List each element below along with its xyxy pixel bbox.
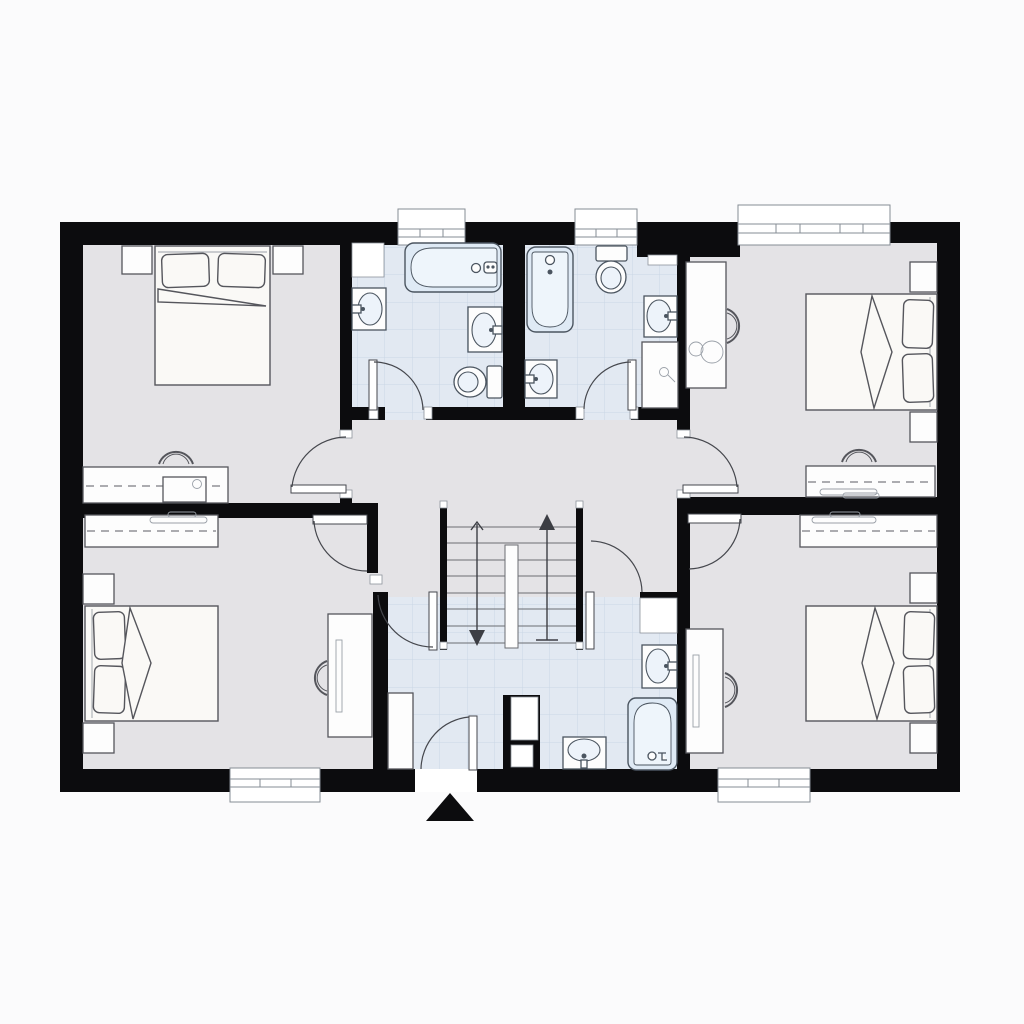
nightstand: [122, 246, 152, 274]
wall-bath-left: [373, 592, 388, 769]
bed: [155, 246, 270, 385]
opening-bedroom-top-left: [340, 437, 352, 492]
floor-plan-page: [0, 0, 1024, 1024]
bed: [806, 294, 937, 410]
cabinet: [388, 693, 413, 769]
nightstand: [83, 723, 114, 753]
wardrobe-counter: [806, 466, 935, 498]
desk: [686, 262, 726, 388]
opening-bathroom-top-left: [385, 407, 426, 420]
nightstand: [273, 246, 303, 274]
floor-hallway-right-branch: [583, 503, 677, 597]
nightstand: [83, 574, 114, 604]
wall-stair-right: [576, 503, 583, 650]
shaft-opening-top: [511, 697, 538, 740]
toilet: [454, 366, 502, 398]
wall-stair-left: [440, 503, 447, 650]
desk: [328, 614, 372, 737]
desk: [83, 467, 228, 503]
floor-plan-drawing: [0, 0, 1024, 1024]
sink: [642, 645, 677, 688]
jamb: [576, 642, 583, 649]
floor-hallway: [352, 415, 677, 503]
window-bedroom-bottom-right: [718, 768, 810, 802]
window-bedroom-bottom-left: [230, 768, 320, 802]
shaft-opening-bottom: [511, 745, 533, 767]
entry-arrow: [426, 793, 474, 821]
nightstand: [910, 412, 937, 442]
wall-bath2-bottom-a: [525, 407, 583, 420]
sink: [563, 737, 606, 769]
wall-bath1-bottom-b: [426, 407, 503, 420]
sink: [525, 360, 557, 398]
sink: [352, 288, 386, 330]
window-bathroom-top-center: [575, 209, 637, 245]
shelf: [352, 243, 384, 277]
nightstand: [910, 262, 937, 292]
wall-left-lower-stub: [367, 518, 378, 573]
desk: [686, 629, 723, 753]
cabinet: [642, 342, 678, 408]
jamb: [424, 407, 432, 419]
window-bathroom-top-left: [398, 209, 465, 245]
window-bedroom-top-right: [738, 205, 890, 245]
wardrobe: [85, 512, 218, 547]
bathtub: [527, 247, 573, 332]
jamb: [576, 407, 584, 419]
opening-bathroom-top-center: [583, 407, 631, 420]
jamb: [440, 501, 447, 508]
bed: [85, 606, 218, 721]
opening-bedroom-top-right: [677, 437, 690, 492]
shelf: [648, 255, 677, 265]
toilet: [596, 246, 627, 293]
nightstand: [910, 573, 937, 603]
bathtub: [405, 243, 501, 292]
jamb: [370, 575, 382, 584]
jamb: [440, 642, 447, 649]
wall-cap-top-right: [637, 230, 740, 257]
jamb: [576, 501, 583, 508]
bathtub: [628, 698, 677, 770]
nightstand: [910, 723, 937, 753]
sink: [468, 307, 502, 352]
opening-entry-door: [415, 769, 477, 792]
sink: [644, 296, 677, 337]
cabinet: [640, 598, 677, 633]
bed: [806, 606, 937, 721]
wardrobe: [800, 512, 937, 547]
wall-between-bathrooms: [503, 222, 525, 420]
stair-divider: [505, 545, 518, 648]
wall-right-horizontal: [677, 497, 960, 515]
